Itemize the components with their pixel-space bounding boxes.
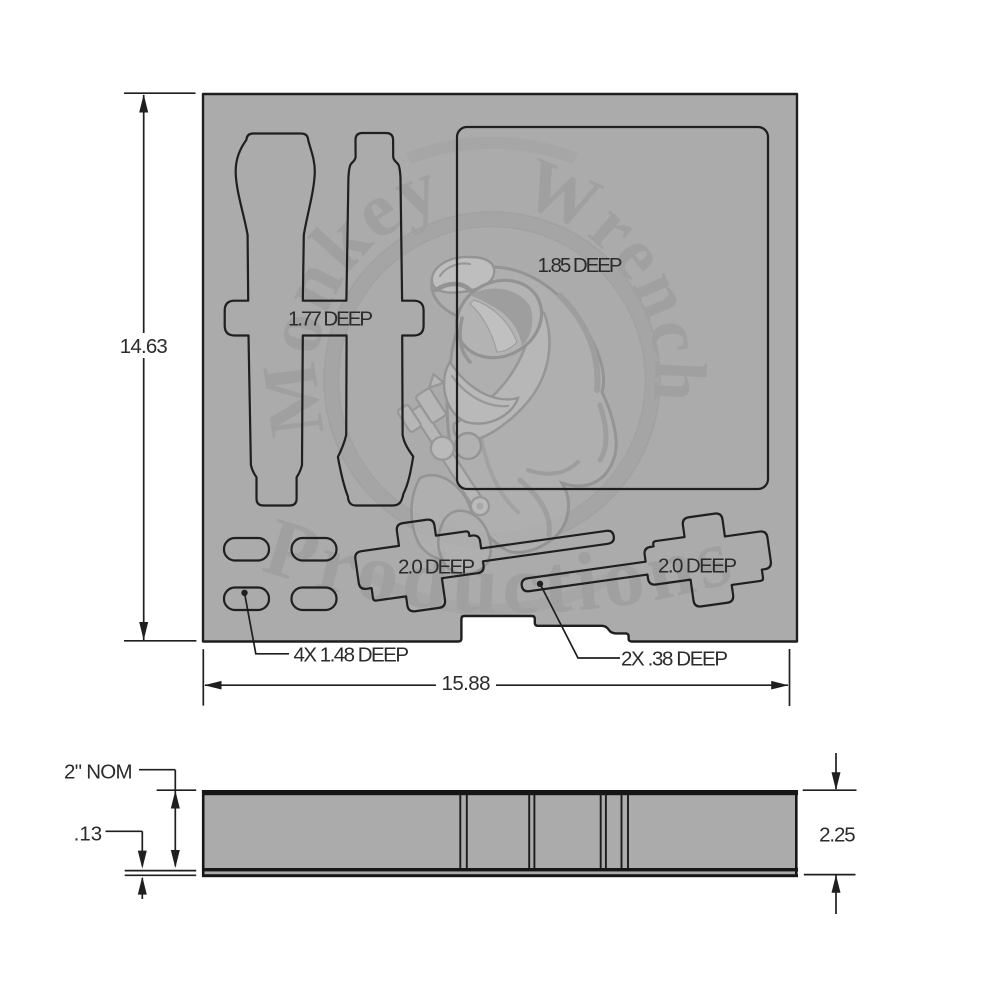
svg-text:2" NOM: 2" NOM <box>64 761 133 784</box>
svg-text:2.0 DEEP: 2.0 DEEP <box>398 556 475 579</box>
svg-text:2.25: 2.25 <box>819 824 856 847</box>
svg-text:2X .38 DEEP: 2X .38 DEEP <box>621 648 728 671</box>
svg-text:14.63: 14.63 <box>120 335 168 358</box>
svg-text:4X 1.48 DEEP: 4X 1.48 DEEP <box>294 644 410 667</box>
svg-text:.13: .13 <box>74 823 103 846</box>
svg-text:15.88: 15.88 <box>442 672 491 695</box>
svg-text:1.77 DEEP: 1.77 DEEP <box>288 308 373 331</box>
svg-text:1.85 DEEP: 1.85 DEEP <box>538 254 623 277</box>
svg-text:2.0 DEEP: 2.0 DEEP <box>658 555 737 578</box>
